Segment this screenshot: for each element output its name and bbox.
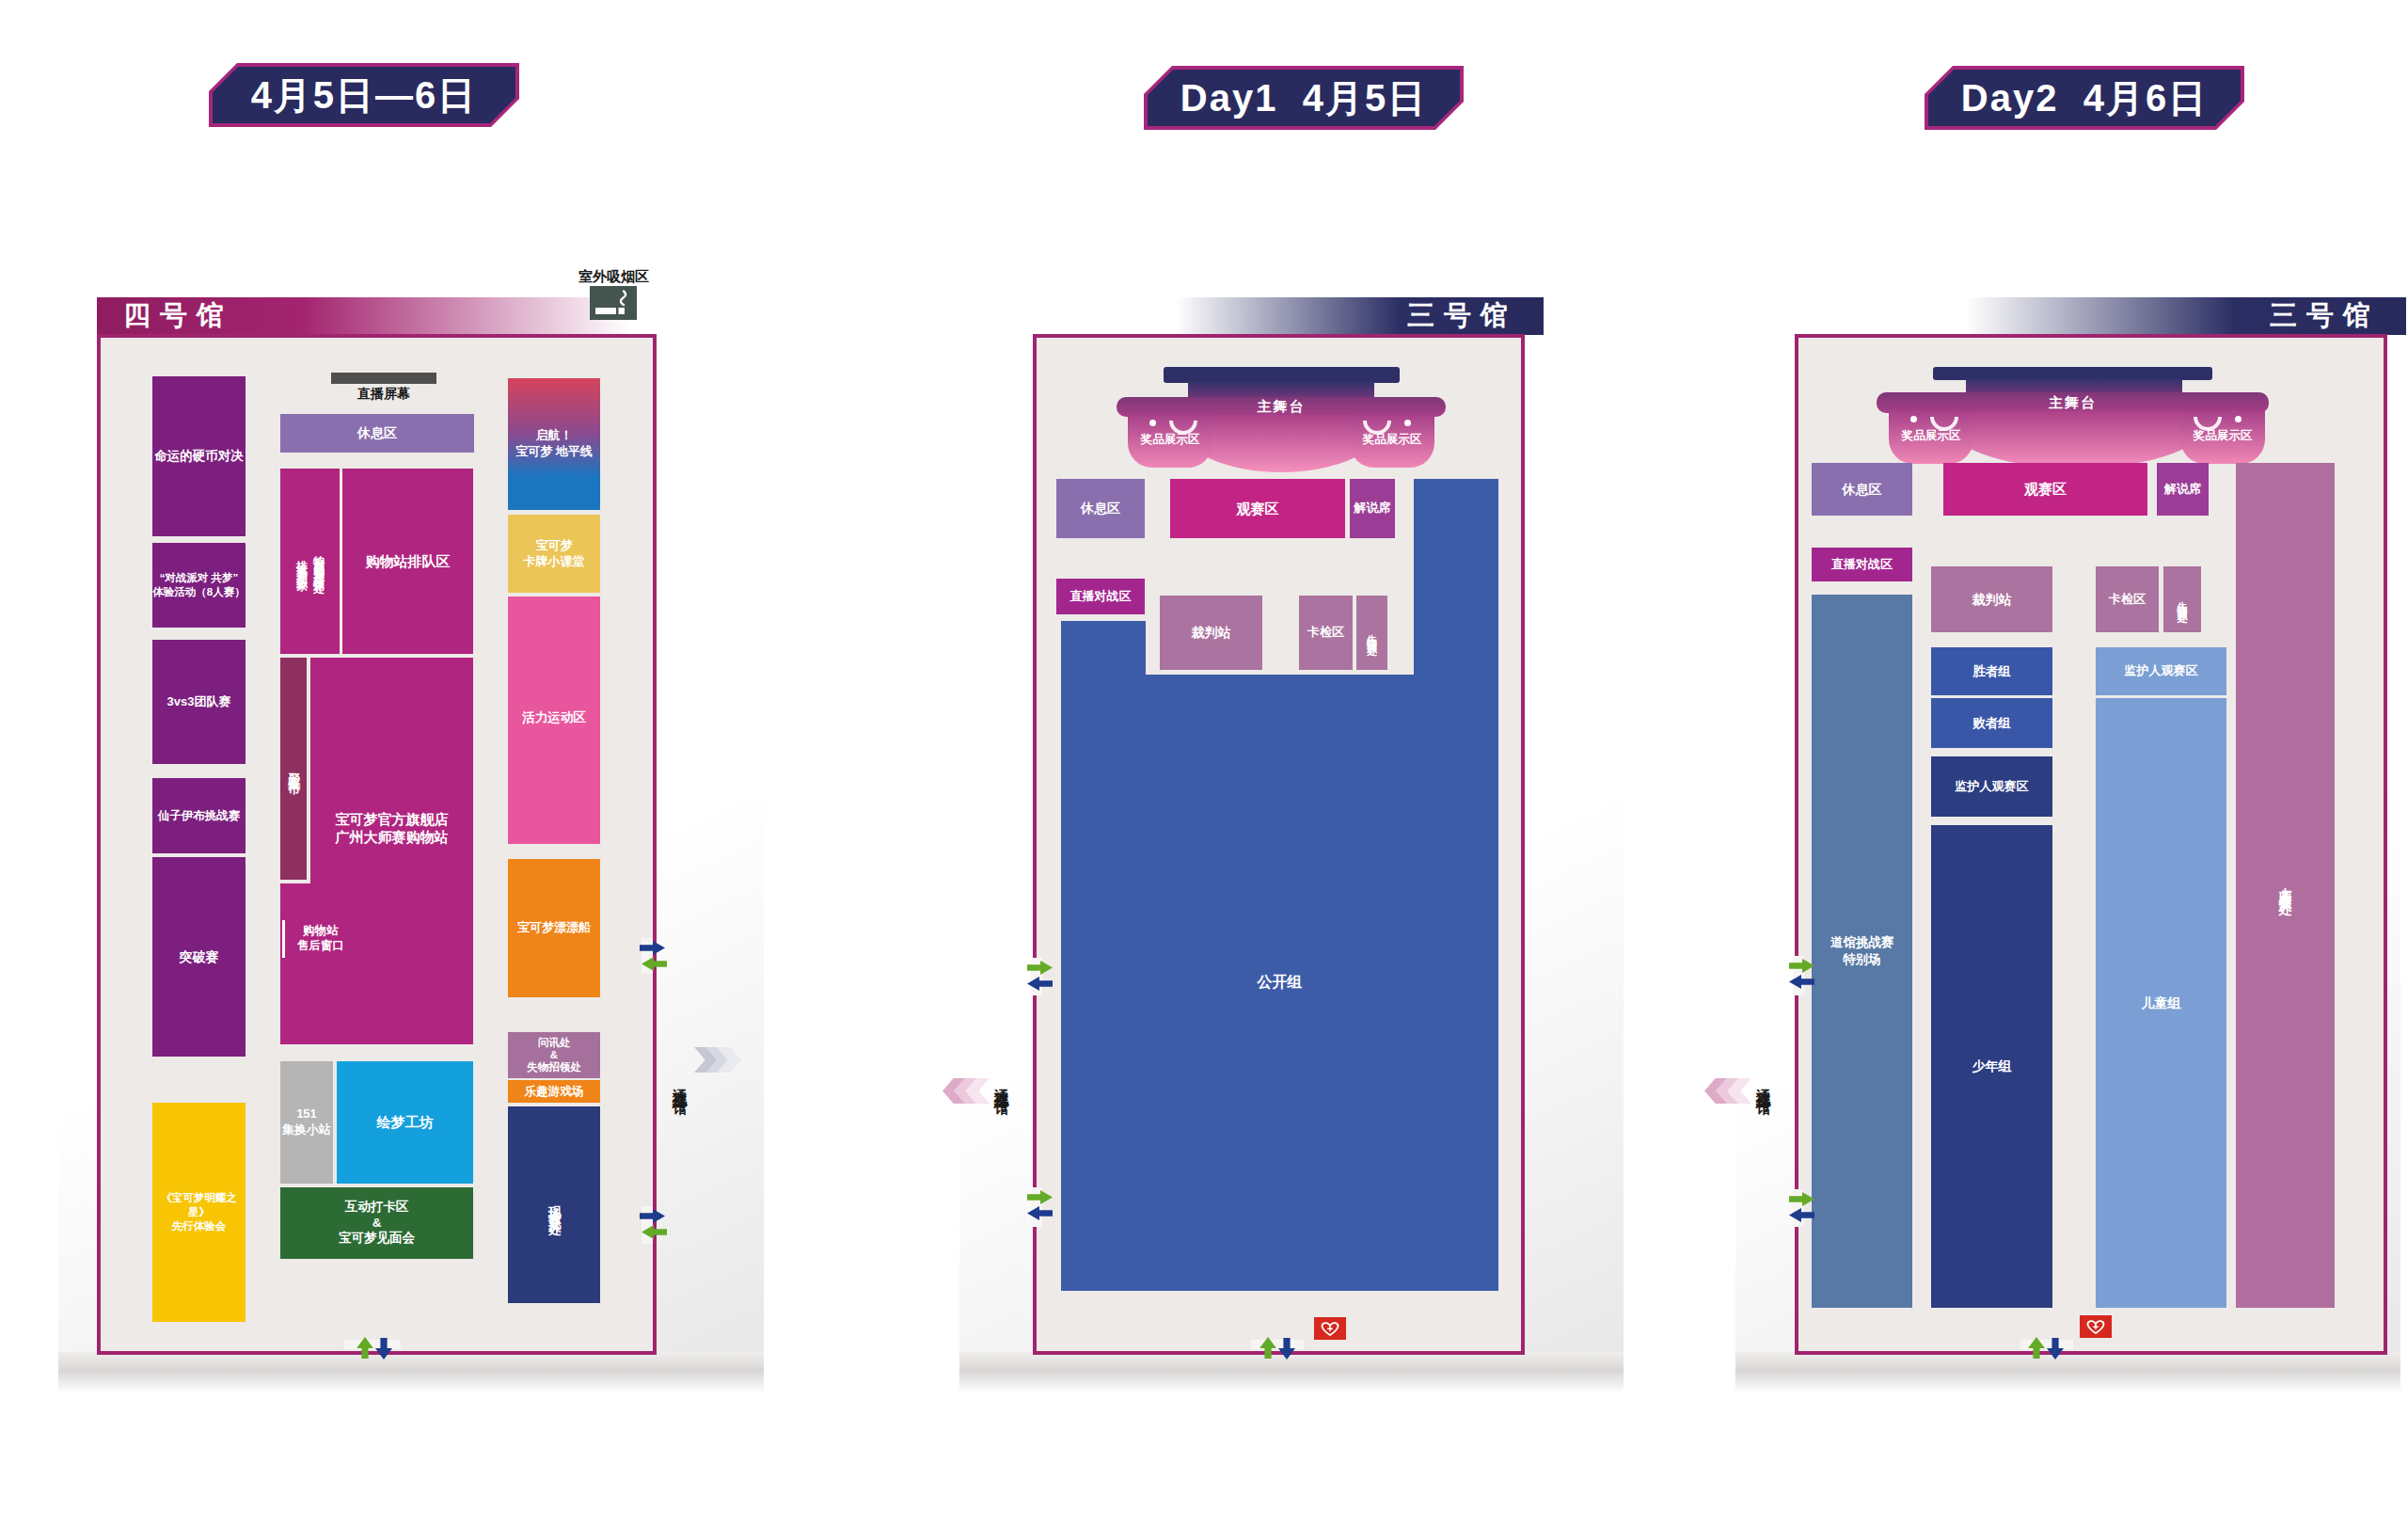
day2-zone-guardian-right: 监护人观赛区 [2096, 647, 2226, 695]
live-screen-bar [331, 373, 436, 384]
zone-treasure-market: 聚宝集市 [280, 658, 307, 880]
day1-zone-live-battle: 直播对战区 [1056, 579, 1145, 614]
zone-dream-workshop: 绘梦工坊 [337, 1061, 473, 1184]
badge-date-range: 4月5日—6日 [209, 63, 519, 127]
hall4-title: 四号馆 [123, 297, 233, 335]
day1-wing-dot-left [1149, 420, 1156, 426]
day2-zone-card-check: 卡检区 [2096, 566, 2159, 632]
day2-zone-viewing: 观赛区 [1943, 463, 2147, 516]
shadow-hall3-day1 [959, 1352, 1624, 1393]
day2-wing-dot-right [2235, 416, 2242, 422]
day2-zone-losers: 败者组 [1931, 698, 2052, 748]
day2-main-stage-label: 主舞台 [2049, 394, 2097, 412]
event-floor-maps-poster: 4月5日—6日 Day1 4月5日 Day2 4月6日 四号馆 室外吸烟区 命运… [0, 0, 2408, 1527]
day2-zone-referee: 裁判站 [1931, 566, 2052, 632]
live-screen-label: 直播屏幕 [320, 386, 448, 401]
day2-prize-display-right: 奖品展示区 [2180, 428, 2265, 444]
day2-zone-commentary: 解说席 [2157, 463, 2209, 516]
zone-info-lost-found: 问讯处 & 失物招领处 [508, 1032, 600, 1078]
zone-rest-area-hall4: 休息区 [280, 414, 474, 453]
zone-horizons: 启航！ 宝可梦 地平线 [508, 378, 600, 510]
day1-zone-commentary: 解说席 [1350, 479, 1395, 538]
day2-zone-masters-prize: 大师赛领奖处 [2236, 463, 2335, 1308]
hall3-day2-title: 三号馆 [2270, 297, 2380, 335]
badge-day1: Day1 4月5日 [1144, 66, 1464, 130]
day1-passage-label: 通往三号馆 [990, 1027, 1014, 1138]
zone-coin-duel: 命运的硬币对决 [152, 376, 246, 536]
day2-zone-winners: 胜者组 [1931, 647, 2052, 695]
day1-zone-referee: 裁判站 [1160, 596, 1262, 670]
hall4-right-gap-2 [642, 1206, 653, 1244]
day1-open-group-left-stub [1061, 621, 1146, 677]
badge-day1-label: Day1 4月5日 [1180, 72, 1427, 124]
zone-battle-party: “对战派对 共梦” 体验活动（8人赛） [152, 543, 246, 628]
day1-prize-display-right: 奖品展示区 [1350, 432, 1434, 448]
day2-zone-guardian-left: 监护人观赛区 [1931, 756, 2052, 817]
ranked-trainers-label: 排位赛参与训练家 [295, 550, 308, 573]
hall3-day2-title-banner: 三号馆 [1795, 297, 2406, 335]
day2-stage-bar: 主舞台 [1877, 392, 2269, 413]
hall4-title-banner: 四号馆 [97, 297, 782, 335]
zone-sylveon-challenge: 仙子伊布挑战赛 [152, 778, 246, 853]
aftersale-door-marker [282, 920, 285, 958]
zone-3vs3-team: 3vs3团队赛 [152, 640, 246, 764]
day2-zone-lost-found: 失物招领处 [2163, 566, 2201, 632]
badge-day2-label: Day2 4月6日 [1961, 72, 2208, 124]
zone-float-boat: 宝可梦漂漂船 [508, 859, 600, 997]
day1-aed-icon [1314, 1317, 1346, 1340]
day2-zone-children: 儿童组 [2096, 698, 2226, 1308]
zone-points-redeem: 现场点数兑奖处 [508, 1106, 600, 1303]
flagship-shop-label: 宝可梦官方旗舰店 广州大师赛购物站 [310, 804, 473, 851]
day1-zone-card-check: 卡检区 [1299, 596, 1353, 670]
day1-zone-rest: 休息区 [1056, 479, 1145, 538]
shadow-hall3-day2 [1735, 1352, 2400, 1393]
zone-fun-playground: 乐趣游戏场 [508, 1080, 600, 1103]
day1-open-group-right-col [1414, 479, 1498, 678]
special-merch-label: 特别商品购买资格核销处 [312, 546, 325, 577]
zone-ranked-checkin: 排位赛参与训练家 特别商品购买资格核销处 [280, 469, 340, 654]
zone-shop-queue: 购物站排队区 [342, 469, 473, 654]
day1-bottom-gap [1251, 1340, 1304, 1349]
day2-aed-icon [2080, 1315, 2112, 1338]
aftersale-label: 购物站 售后窗口 [288, 917, 354, 959]
shadow-hall4 [58, 1352, 764, 1393]
zone-sports-area: 活力运动区 [508, 596, 600, 844]
hall4-passage-label: 通往三号馆 [668, 1027, 692, 1138]
smoking-area-icon [590, 286, 637, 320]
badge-date-range-label: 4月5日—6日 [251, 70, 478, 121]
day1-stage-bar: 主舞台 [1117, 397, 1446, 417]
day2-zone-gym-special: 道馆挑战赛 特别场 [1812, 595, 1912, 1308]
hall3-day1-title-banner: 三号馆 [1033, 297, 1544, 335]
day1-zone-lost-found: 失物招领处 [1356, 596, 1387, 670]
day2-wing-dot-left [1910, 416, 1917, 422]
day1-zone-viewing: 观赛区 [1170, 479, 1345, 538]
zone-photo-meet: 互动打卡区 & 宝可梦见面会 [280, 1187, 473, 1259]
zone-card-class: 宝可梦 卡牌小课堂 [508, 515, 600, 593]
day2-zone-rest: 休息区 [1812, 463, 1912, 516]
day2-prize-display-left: 奖品展示区 [1889, 428, 1973, 444]
badge-day2: Day2 4月6日 [1925, 66, 2244, 130]
zone-flagship-shop-ext [280, 883, 318, 1044]
day1-wing-dot-right [1404, 420, 1411, 426]
day2-zone-live-battle: 直播对战区 [1812, 548, 1912, 581]
hall4-smoking-label: 室外吸烟区 [569, 269, 658, 284]
hall3-day1-title: 三号馆 [1407, 297, 1517, 335]
day1-zone-open-group: 公开组 [1061, 675, 1498, 1291]
zone-breakthrough: 突破赛 [152, 857, 246, 1057]
zone-shining-star-demo: 《宝可梦明耀之星》 先行体验会 [152, 1103, 246, 1322]
day2-zone-juniors: 少年组 [1931, 825, 2052, 1308]
zone-151-station: 151 集换小站 [280, 1061, 333, 1184]
day1-prize-display-left: 奖品展示区 [1128, 432, 1212, 448]
day1-main-stage-label: 主舞台 [1258, 398, 1306, 416]
day2-passage-label: 通往三号馆 [1751, 1027, 1776, 1138]
